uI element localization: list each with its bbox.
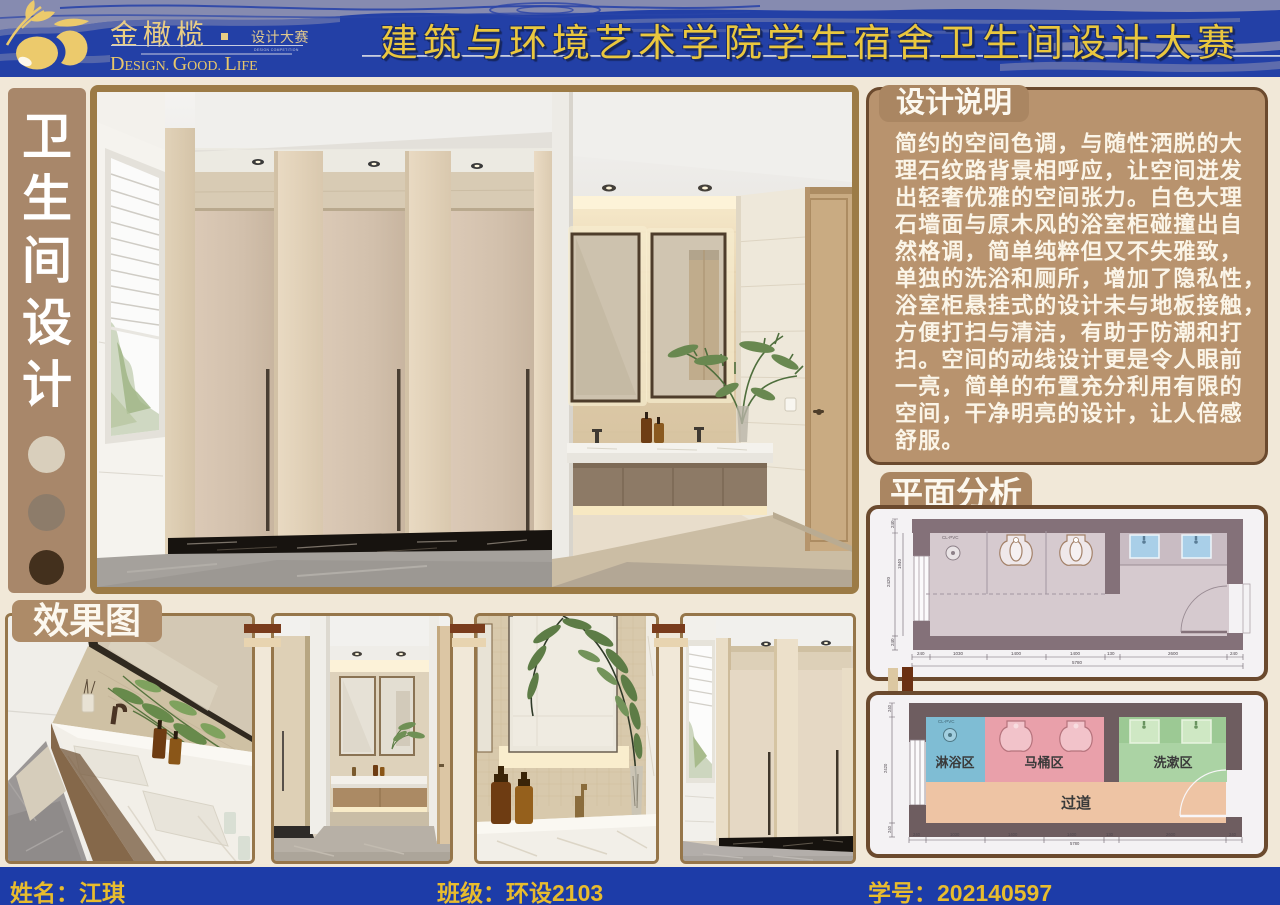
svg-text:130: 130: [1107, 651, 1115, 656]
svg-text:1400: 1400: [1070, 651, 1081, 656]
svg-text:DESIGN COMPETITION: DESIGN COMPETITION: [254, 48, 299, 52]
svg-text:5780: 5780: [1070, 841, 1080, 846]
svg-text:2420: 2420: [883, 763, 888, 773]
svg-text:240: 240: [913, 832, 921, 837]
svg-text:1400: 1400: [1011, 651, 1022, 656]
svg-text:1030: 1030: [950, 832, 960, 837]
svg-text:CL-PVC: CL-PVC: [938, 719, 955, 724]
svg-text:淋浴区: 淋浴区: [935, 755, 974, 770]
svg-text:DESIGN. GOOD. LIFE: DESIGN. GOOD. LIFE: [110, 53, 258, 75]
svg-text:240: 240: [1229, 832, 1237, 837]
svg-text:1400: 1400: [1067, 832, 1077, 837]
svg-text:过道: 过道: [1061, 794, 1091, 812]
svg-text:240: 240: [917, 651, 925, 656]
svg-text:130: 130: [1106, 832, 1114, 837]
svg-text:240: 240: [887, 704, 892, 712]
svg-text:240: 240: [890, 638, 895, 646]
svg-text:240: 240: [887, 825, 892, 833]
svg-text:1940: 1940: [897, 558, 902, 569]
svg-text:设计大赛: 设计大赛: [251, 30, 309, 46]
svg-text:240: 240: [1230, 651, 1238, 656]
svg-text:洗漱区: 洗漱区: [1153, 755, 1192, 770]
svg-text:2600: 2600: [1166, 832, 1176, 837]
svg-text:240: 240: [890, 520, 895, 528]
svg-text:5780: 5780: [1072, 660, 1083, 665]
svg-text:1030: 1030: [953, 651, 964, 656]
svg-text:2600: 2600: [1168, 651, 1179, 656]
svg-text:金橄榄: 金橄榄: [110, 19, 209, 51]
svg-text:CL-PVC: CL-PVC: [942, 535, 959, 540]
svg-text:2420: 2420: [886, 576, 891, 587]
svg-text:马桶区: 马桶区: [1024, 755, 1063, 770]
svg-text:1400: 1400: [1008, 832, 1018, 837]
